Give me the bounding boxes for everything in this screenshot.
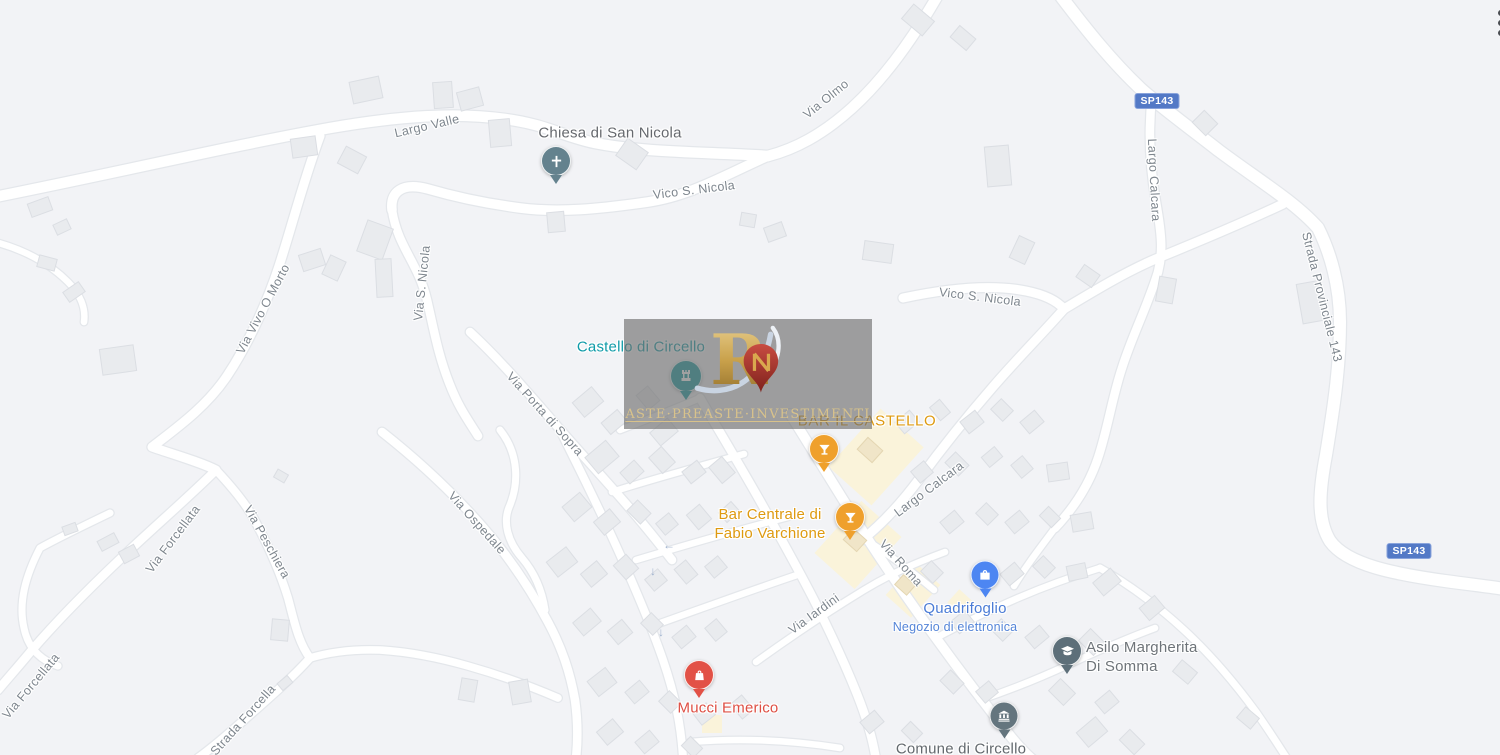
agency-watermark: R ASTE·PREASTE·INVESTIMENTI [624,319,872,429]
shopping-store-icon [693,669,706,682]
graduation-cap-icon [1060,644,1075,659]
route-shield-sp143-2: SP143 [1386,543,1431,559]
government-building-icon [998,710,1011,723]
oneway-arrow-down-icon: ↓ [650,564,656,578]
quadrifoglio-pin[interactable] [971,561,1000,590]
agency-tagline: ASTE·PREASTE·INVESTIMENTI [625,407,870,422]
cocktail-glass-icon [844,511,857,524]
poi-label-line: Bar Centrale di [714,505,825,524]
poi-label-line: Fabio Varchione [714,524,825,543]
poi-label-line: Di Somma [1086,657,1198,676]
poi-label-bar-centrale[interactable]: Bar Centrale di Fabio Varchione [714,505,825,543]
agency-logo: R [678,317,818,399]
poi-label-mucci[interactable]: Mucci Emerico [678,699,779,718]
mucci-pin[interactable] [684,660,714,690]
poi-label-chiesa[interactable]: Chiesa di San Nicola [538,124,681,143]
shopping-bag-icon [979,569,992,582]
map-viewport[interactable]: ← ↓ ↓ Largo Valle Vico S. Nicola Via Olm… [0,0,1500,755]
poi-label-quadrifoglio[interactable]: Quadrifoglio Negozio di elettronica [913,599,1018,637]
cocktail-glass-icon [818,443,831,456]
bar-centrale-pin[interactable] [835,502,865,532]
poi-label-line: Quadrifoglio [913,599,1018,618]
comune-pin[interactable] [990,702,1019,731]
church-pin[interactable] [541,146,571,176]
asilo-pin[interactable] [1052,636,1082,666]
poi-label-line: Asilo Margherita [1086,638,1198,657]
poi-sublabel: Negozio di elettronica [893,618,1018,637]
oneway-arrow-down-icon: ↓ [658,625,664,639]
oneway-arrow-left-icon: ← [663,538,675,552]
poi-label-comune[interactable]: Comune di Circello [896,740,1026,755]
bar-il-castello-pin[interactable] [809,434,839,464]
poi-label-asilo[interactable]: Asilo Margherita Di Somma [1086,638,1198,676]
church-cross-icon [550,155,563,168]
route-shield-sp143-1: SP143 [1134,93,1179,109]
